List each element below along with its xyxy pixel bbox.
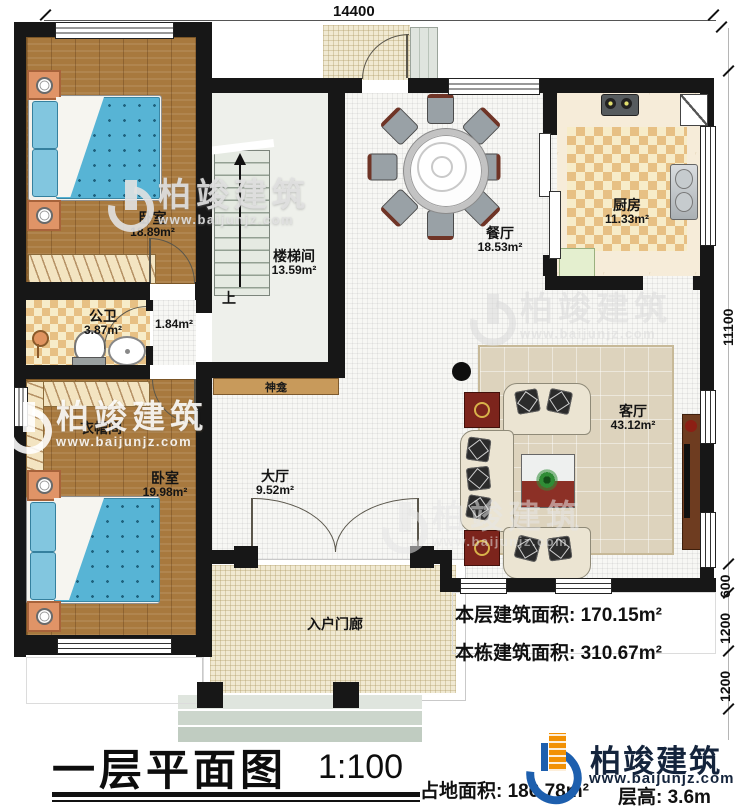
toilet-brush-icon <box>32 330 49 347</box>
pillow <box>30 552 56 600</box>
back-steps <box>410 27 438 80</box>
room-label-bathroom: 公卫 3.87m² <box>58 308 148 338</box>
side-terrace-outline <box>26 657 204 704</box>
wall <box>196 362 345 378</box>
nightstand <box>27 70 61 100</box>
sofa-cushion <box>466 466 491 491</box>
brand-logo-building <box>549 733 566 771</box>
shrine-label: 神龛 <box>265 379 287 395</box>
dim-tick <box>715 21 727 33</box>
room-label-living: 客厅 43.12m² <box>585 403 681 433</box>
column-dot <box>452 362 471 381</box>
wall-top-kitchen <box>538 78 714 93</box>
door-jamb <box>410 546 434 568</box>
kitchen-checker-floor <box>567 127 687 251</box>
wall-left <box>14 22 26 657</box>
window <box>460 578 507 594</box>
title-underline <box>52 792 420 797</box>
room-label-bedroom1: 卧室 18.89m² <box>95 210 210 240</box>
porch-column <box>197 682 223 708</box>
room-label-cloakroom: 衣帽间 <box>60 420 142 436</box>
sofa-cushion <box>546 388 573 415</box>
sink-basin <box>675 169 693 189</box>
plan-scale: 1:100 <box>318 748 403 787</box>
room-label-porch: 入户门廊 <box>272 616 398 632</box>
sliding-door-panel <box>539 133 551 197</box>
burner-icon <box>621 98 632 109</box>
floor-plan-canvas: 神龛 卧室 18.89m² <box>0 0 750 809</box>
shrine-shelf: 神龛 <box>213 378 339 395</box>
window <box>700 126 716 246</box>
window <box>700 390 716 444</box>
wardrobe <box>28 254 156 284</box>
wall-kitchen-left <box>543 93 557 135</box>
porch-column <box>333 682 359 708</box>
brand-logo-icon <box>527 731 583 797</box>
wall-bath-bottom-left <box>14 365 150 379</box>
wall-stair-right <box>328 78 345 362</box>
toilet-brush-handle <box>37 344 39 358</box>
door-jamb <box>234 546 258 568</box>
window <box>55 22 174 39</box>
room-label-hall: 大厅 9.52m² <box>230 468 320 498</box>
brand-logo-building-bar <box>541 743 548 771</box>
pillow <box>30 502 56 552</box>
stair-arrow-head <box>234 153 246 165</box>
window <box>555 578 612 594</box>
brand-url: www.baijunjz.com <box>589 770 734 787</box>
wall-bath-top-right <box>195 282 212 300</box>
door-leaf <box>251 498 253 552</box>
pillow <box>32 149 58 197</box>
window <box>14 387 28 427</box>
door-leaf <box>406 34 408 78</box>
door-leaf <box>149 238 151 284</box>
room-label-kitchen: 厨房 11.33m² <box>572 197 682 227</box>
wall-bedroom2-right <box>196 365 212 657</box>
dim-right-1200a: 1200 <box>717 600 733 644</box>
decor-item <box>685 420 697 432</box>
dining-table-center <box>431 156 453 178</box>
window <box>57 638 172 654</box>
window <box>700 512 716 568</box>
corridor-floor <box>153 300 196 365</box>
nightstand <box>27 200 61 231</box>
door-leaf <box>417 498 419 552</box>
wall-bath-partition <box>146 346 153 365</box>
nightstand <box>27 601 61 632</box>
floor-area-note: 本层建筑面积: 170.15m² <box>455 600 662 627</box>
side-table <box>464 392 500 428</box>
wall-kitchen-bottom <box>545 276 643 290</box>
tv-icon <box>684 444 690 518</box>
sofa-cushion <box>465 494 492 521</box>
dim-line-top <box>44 20 716 21</box>
wall-bath-top-left <box>14 282 150 300</box>
plant-icon <box>535 468 559 492</box>
room-label-bedroom2: 卧室 19.98m² <box>110 470 220 500</box>
room-label-dining: 餐厅 18.53m² <box>445 225 555 255</box>
kitchen-cabinet <box>559 248 595 278</box>
nightstand <box>27 470 61 501</box>
sofa-cushion <box>514 388 541 415</box>
wall-top-dining <box>408 78 448 93</box>
sofa-cushion <box>547 536 573 562</box>
dining-chair <box>427 94 454 124</box>
dining-chair <box>368 154 398 181</box>
wall-bedroom1-right <box>196 22 212 313</box>
room-label-corridor: 1.84m² <box>146 318 202 332</box>
dim-top-width: 14400 <box>330 3 378 20</box>
stairs-up-label: 上 <box>216 290 242 306</box>
pillow <box>32 101 58 149</box>
side-table <box>464 530 500 566</box>
sofa-cushion <box>466 437 492 463</box>
corner-cabinet-icon <box>680 94 708 126</box>
page-title: 一层平面图 <box>52 736 287 798</box>
window <box>448 78 540 95</box>
cloak-closet <box>28 381 150 407</box>
room-label-stairwell: 楼梯间 13.59m² <box>238 248 350 278</box>
building-area-note: 本栋建筑面积: 310.67m² <box>455 638 662 665</box>
dim-right-height: 11100 <box>720 290 736 346</box>
title-underline-thin <box>52 800 420 802</box>
burner-icon <box>605 98 616 109</box>
dim-right-1200b: 1200 <box>717 658 733 702</box>
